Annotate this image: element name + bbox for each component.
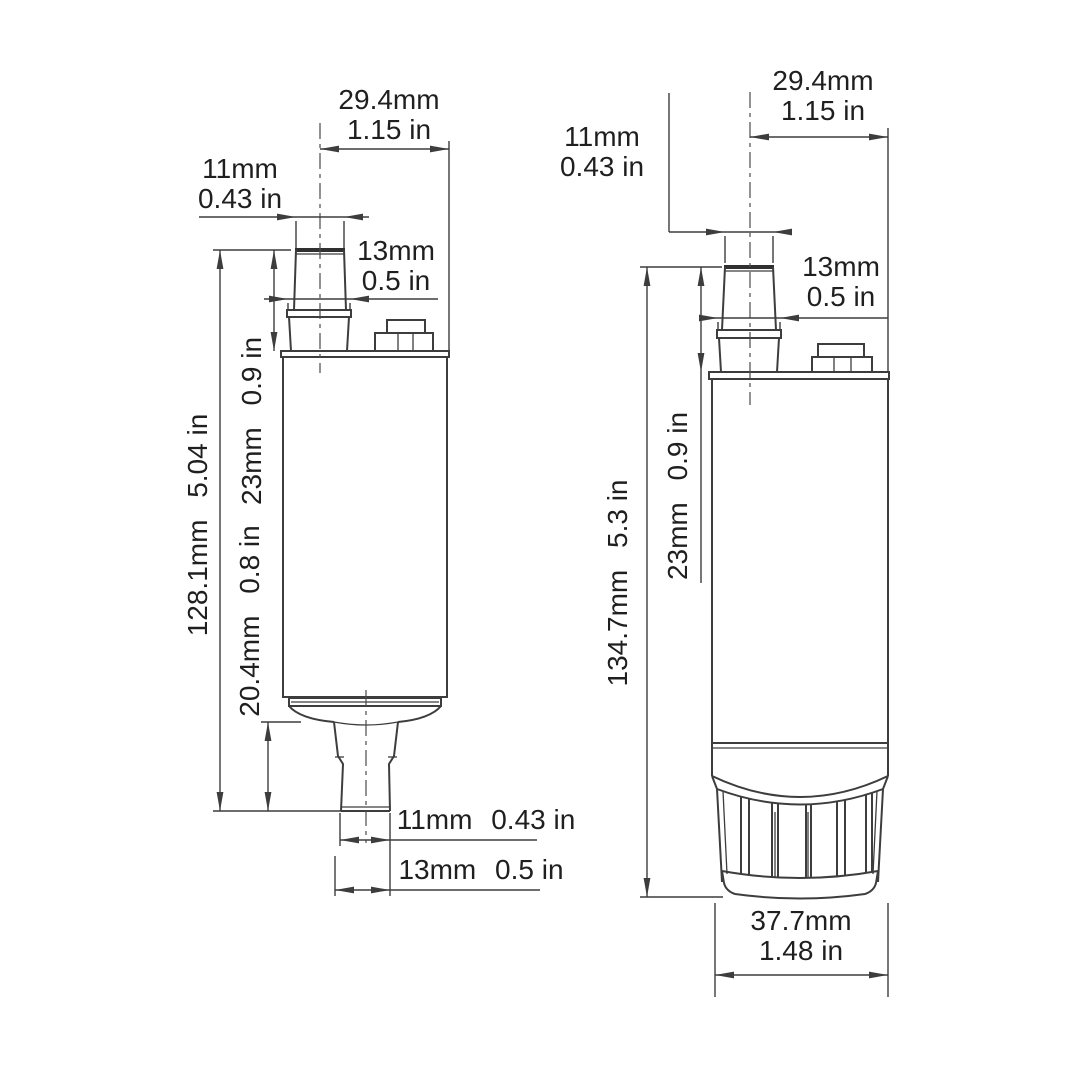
dim-label-right-outlet-tip-od: 11mm 0.43 in [560,122,644,182]
dim-mm-value: 20.4mm [234,616,266,717]
dim-mm-value: 11mm [198,154,282,184]
dim-mm-value: 11mm [560,122,644,152]
dim-in-value: 1.15 in [772,96,873,126]
pump-line-art [0,0,1080,1080]
dim-label-left-inlet-base-od: 13mm 0.5 in [398,854,563,886]
dim-label-left-outlet-height: 23mm 0.9 in [236,337,268,505]
dim-in-value: 0.5 in [357,266,435,296]
dim-mm-value: 13mm [357,236,435,266]
left-pump-outline [281,123,449,843]
dim-mm-value: 23mm [236,427,268,505]
pump-dimension-drawing: 29.4mm 1.15 in 11mm 0.43 in 13mm 0.5 in … [0,0,1080,1080]
dim-in-value: 0.43 in [491,804,575,836]
dim-label-right-strainer-od: 37.7mm 1.48 in [750,906,851,966]
dim-label-left-outlet-od: 29.4mm 1.15 in [338,85,439,145]
dim-label-left-outlet-base-od: 13mm 0.5 in [357,236,435,296]
dim-in-value: 0.9 in [662,412,694,481]
dim-in-value: 1.48 in [750,936,851,966]
dim-mm-value: 134.7mm [602,570,634,687]
dim-label-left-outlet-tip-od: 11mm 0.43 in [198,154,282,214]
dim-label-left-inlet-tip-od: 11mm 0.43 in [397,804,576,836]
dim-label-right-outlet-height: 23mm 0.9 in [662,412,694,580]
dim-in-value: 5.3 in [602,480,634,549]
dim-in-value: 0.9 in [236,337,268,406]
dim-mm-value: 13mm [398,854,476,886]
dim-label-right-outlet-base-od: 13mm 0.5 in [802,252,880,312]
dim-in-value: 0.43 in [560,152,644,182]
right-pump-outline [709,92,889,899]
dim-label-right-outlet-od: 29.4mm 1.15 in [772,66,873,126]
dim-mm-value: 11mm [397,804,473,836]
dim-in-value: 0.5 in [495,854,564,886]
dim-label-left-overall-height: 128.1mm 5.04 in [182,414,214,637]
dim-mm-value: 23mm [662,502,694,580]
dim-label-left-inlet-height: 20.4mm 0.8 in [234,525,266,716]
dim-in-value: 0.43 in [198,184,282,214]
dim-in-value: 0.8 in [234,525,266,594]
dim-mm-value: 13mm [802,252,880,282]
dim-in-value: 1.15 in [338,115,439,145]
dim-mm-value: 37.7mm [750,906,851,936]
dim-mm-value: 128.1mm [182,520,214,637]
dim-in-value: 0.5 in [802,282,880,312]
dim-in-value: 5.04 in [182,414,214,498]
dim-mm-value: 29.4mm [338,85,439,115]
dim-label-right-overall-height: 134.7mm 5.3 in [602,480,634,687]
dim-mm-value: 29.4mm [772,66,873,96]
